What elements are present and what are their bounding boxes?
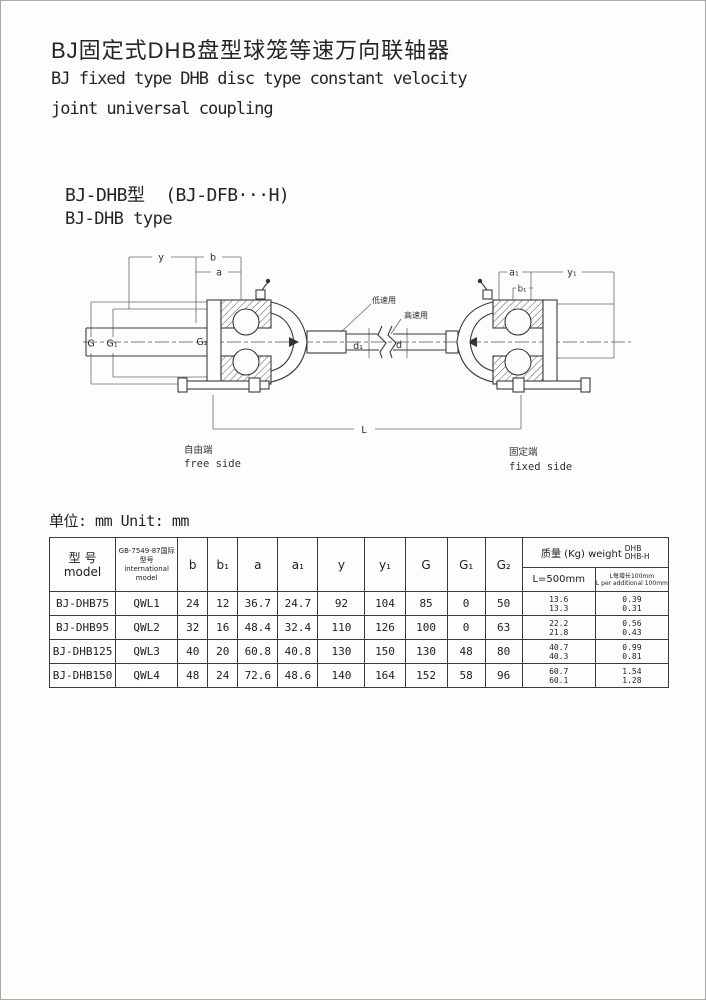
table-cell: BJ-DHB95 — [50, 616, 116, 640]
weight-cell: 13.613.3 — [522, 592, 595, 616]
table-cell: 16 — [208, 616, 238, 640]
table-cell: 63 — [485, 616, 522, 640]
dim-label-b1: b₁ — [518, 285, 527, 295]
header-per-100-en: L per additional 100mm — [596, 580, 668, 587]
header-row-1: 型 号 model GB-7549-87国际型号 international m… — [50, 538, 669, 568]
table-cell: BJ-DHB125 — [50, 640, 116, 664]
dim-label-d: d — [396, 340, 402, 351]
header-b1: b₁ — [208, 538, 238, 592]
table-cell: 20 — [208, 640, 238, 664]
table-cell: 110 — [318, 616, 365, 640]
table-cell: 140 — [318, 664, 365, 688]
table-cell: 85 — [405, 592, 447, 616]
table-cell: BJ-DHB150 — [50, 664, 116, 688]
header-b: b — [178, 538, 208, 592]
table-cell: QWL2 — [116, 616, 178, 640]
header-intl-en: international model — [116, 565, 177, 583]
weight-cell: 22.221.8 — [522, 616, 595, 640]
dim-label-d1: d₁ — [353, 341, 363, 352]
table-cell: 32.4 — [278, 616, 318, 640]
type-label-zh: BJ-DHB型 (BJ-DFB···H) — [65, 181, 289, 207]
fixed-side-label-en: fixed side — [509, 461, 572, 473]
weight-cell: 0.990.81 — [595, 640, 668, 664]
table-cell: 130 — [405, 640, 447, 664]
annotation-low-speed: 低速用 — [372, 295, 396, 305]
dim-label-G1: G₁ — [106, 339, 117, 350]
table-cell: 0 — [447, 592, 485, 616]
dim-label-y: y — [158, 253, 164, 264]
table-cell: 36.7 — [238, 592, 278, 616]
table-cell: 48.6 — [278, 664, 318, 688]
table-cell: 58 — [447, 664, 485, 688]
dim-label-b: b — [210, 253, 216, 264]
table-row: BJ-DHB75QWL1241236.724.7921048505013.613… — [50, 592, 669, 616]
table-cell: 24 — [178, 592, 208, 616]
table-cell: 24.7 — [278, 592, 318, 616]
dim-label-L: L — [361, 425, 367, 436]
table-cell: 0 — [447, 616, 485, 640]
table-cell: 104 — [365, 592, 405, 616]
header-l500: L=500mm — [522, 568, 595, 592]
table-cell: QWL1 — [116, 592, 178, 616]
weight-cell: 60.760.1 — [522, 664, 595, 688]
grease-fitting-icon — [478, 279, 492, 299]
header-a1: a₁ — [278, 538, 318, 592]
header-G: G — [405, 538, 447, 592]
grease-fitting-icon — [256, 279, 270, 299]
header-weight: 质量 (Kg) weight DHB DHB-H — [522, 538, 668, 568]
table-cell: 48 — [178, 664, 208, 688]
table-row: BJ-DHB95QWL2321648.432.411012610006322.2… — [50, 616, 669, 640]
table-cell: 80 — [485, 640, 522, 664]
table-cell: 60.8 — [238, 640, 278, 664]
dim-label-G2: G₂ — [196, 337, 207, 348]
table-cell: 40.8 — [278, 640, 318, 664]
unit-note: 单位: mm Unit: mm — [49, 510, 189, 531]
dim-label-y1: y₁ — [567, 268, 577, 279]
annotation-high-speed: 高速用 — [404, 310, 428, 320]
header-per-100: L每增长100mm L per additional 100mm — [595, 568, 668, 592]
table-cell: 32 — [178, 616, 208, 640]
header-per-100-zh: L每增长100mm — [596, 573, 668, 580]
table-cell: QWL4 — [116, 664, 178, 688]
table-cell: 48.4 — [238, 616, 278, 640]
table-cell: 150 — [365, 640, 405, 664]
header-intl-zh: GB-7549-87国际型号 — [116, 547, 177, 565]
header-model-zh: 型 号 — [50, 551, 115, 565]
weight-cell: 1.541.28 — [595, 664, 668, 688]
page-title-en-line1: BJ fixed type DHB disc type constant vel… — [51, 69, 467, 89]
free-side-label-zh: 自由端 — [184, 444, 213, 456]
header-weight-label: 质量 (Kg) weight — [541, 545, 622, 560]
table-cell: 24 — [208, 664, 238, 688]
table-cell: 48 — [447, 640, 485, 664]
table-row: BJ-DHB150QWL4482472.648.6140164152589660… — [50, 664, 669, 688]
table-cell: 92 — [318, 592, 365, 616]
header-weight-dhb-h: DHB-H — [625, 553, 650, 561]
table-cell: 152 — [405, 664, 447, 688]
type-label-en: BJ-DHB type — [65, 209, 172, 229]
table-cell: 164 — [365, 664, 405, 688]
header-international-model: GB-7549-87国际型号 international model — [116, 538, 178, 592]
free-side-label-en: free side — [184, 458, 241, 470]
table-cell: BJ-DHB75 — [50, 592, 116, 616]
page-title-zh: BJ固定式DHB盘型球笼等速万向联轴器 — [51, 33, 450, 65]
table-row: BJ-DHB125QWL3402060.840.8130150130488040… — [50, 640, 669, 664]
technical-drawing: y b a a₁ b₁ y₁ G G₁ G₂ d₁ d L 低速用 高速用 自由… — [61, 244, 661, 484]
header-y: y — [318, 538, 365, 592]
table-cell: 96 — [485, 664, 522, 688]
table-cell: QWL3 — [116, 640, 178, 664]
header-model: 型 号 model — [50, 538, 116, 592]
table-cell: 40 — [178, 640, 208, 664]
header-y1: y₁ — [365, 538, 405, 592]
right-joint-assembly — [457, 279, 590, 392]
header-a: a — [238, 538, 278, 592]
dim-label-G: G — [87, 339, 94, 350]
dim-label-a: a — [216, 268, 222, 279]
page-title-en-line2: joint universal coupling — [51, 99, 273, 119]
fixed-side-label-zh: 固定端 — [509, 446, 538, 458]
table-cell: 130 — [318, 640, 365, 664]
table-cell: 100 — [405, 616, 447, 640]
header-G1: G₁ — [447, 538, 485, 592]
table-cell: 72.6 — [238, 664, 278, 688]
header-model-en: model — [50, 565, 115, 579]
spec-table: 型 号 model GB-7549-87国际型号 international m… — [49, 537, 669, 688]
weight-cell: 40.740.3 — [522, 640, 595, 664]
table-cell: 12 — [208, 592, 238, 616]
table-cell: 126 — [365, 616, 405, 640]
header-G2: G₂ — [485, 538, 522, 592]
catalog-page: BJ固定式DHB盘型球笼等速万向联轴器 BJ fixed type DHB di… — [0, 0, 706, 1000]
left-joint-assembly — [86, 279, 307, 392]
dim-label-a1: a₁ — [509, 268, 519, 279]
table-cell: 50 — [485, 592, 522, 616]
weight-cell: 0.560.43 — [595, 616, 668, 640]
weight-cell: 0.390.31 — [595, 592, 668, 616]
table-body: BJ-DHB75QWL1241236.724.7921048505013.613… — [50, 592, 669, 688]
